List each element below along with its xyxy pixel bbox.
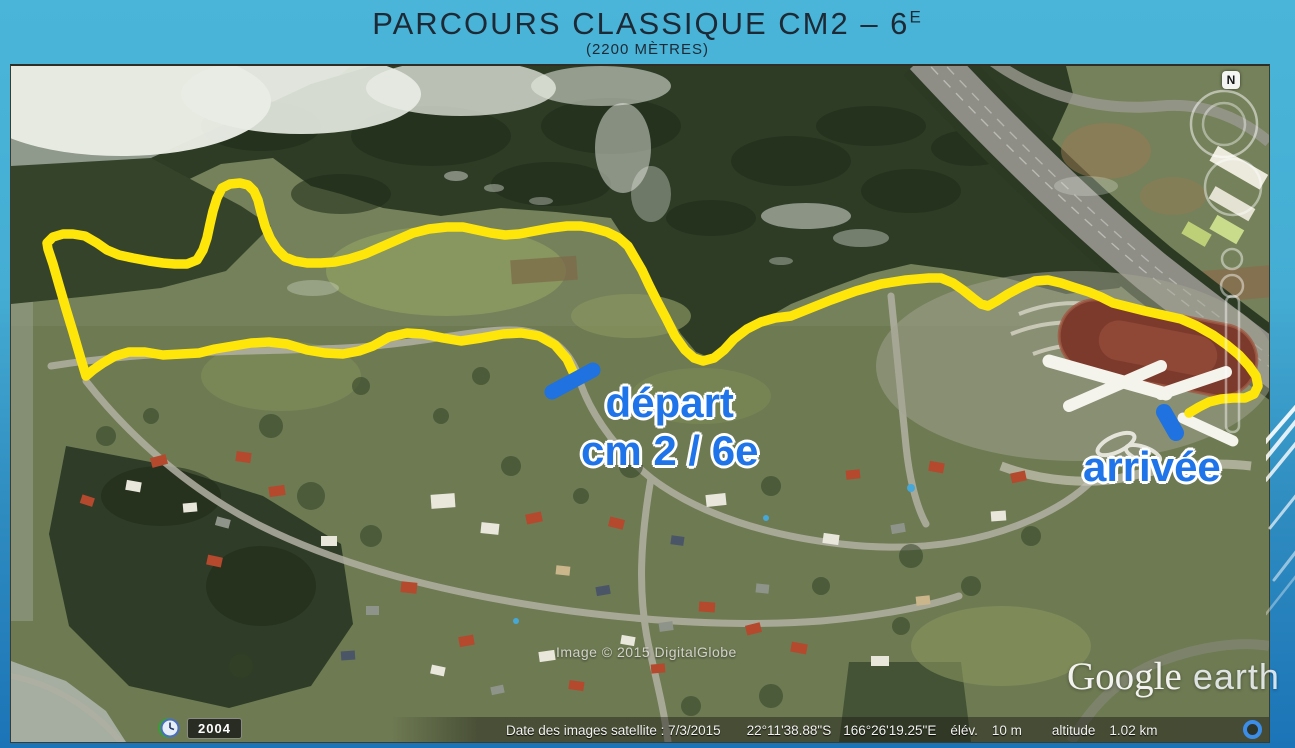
imagery-date: Date des images satellite : 7/3/2015 [506, 723, 721, 738]
elevation-value: 10 m [992, 723, 1022, 738]
finish-marker [1164, 412, 1176, 433]
historical-imagery-control[interactable]: 2004 [157, 716, 242, 740]
page-title: PARCOURS CLASSIQUE CM2 – 6E [0, 6, 1295, 42]
altitude-value: 1.02 km [1109, 723, 1157, 738]
slide-subtitle: (2200 MÈTRES) [0, 41, 1295, 58]
route-label-depart: départ cm 2 / 6e [581, 382, 758, 472]
compass-north-button[interactable]: N [1222, 71, 1240, 89]
google-earth-logo: Google earth [1067, 654, 1280, 699]
slide-edge-decoration [1266, 368, 1295, 638]
imagery-credit: Image © 2015 DigitalGlobe [556, 644, 737, 660]
imagery-year-badge[interactable]: 2004 [187, 718, 242, 739]
altitude-label: altitude [1052, 723, 1096, 738]
title-block: PARCOURS CLASSIQUE CM2 – 6E (2200 MÈTRES… [0, 6, 1295, 58]
presentation-slide: PARCOURS CLASSIQUE CM2 – 6E (2200 MÈTRES… [0, 0, 1295, 748]
status-bar-text: Date des images satellite : 7/3/2015 22°… [506, 723, 1157, 738]
latitude-readout: 22°11'38.88"S [747, 723, 832, 738]
longitude-readout: 166°26'19.25"E [843, 723, 936, 738]
streaming-progress-icon [1243, 720, 1262, 739]
clock-icon[interactable] [157, 716, 181, 740]
route-label-arrivee: arrivée [1083, 446, 1221, 488]
satellite-map-viewport[interactable]: départ cm 2 / 6e arrivée N Image © 2015 … [10, 64, 1270, 743]
elevation-label: élév. [950, 723, 978, 738]
